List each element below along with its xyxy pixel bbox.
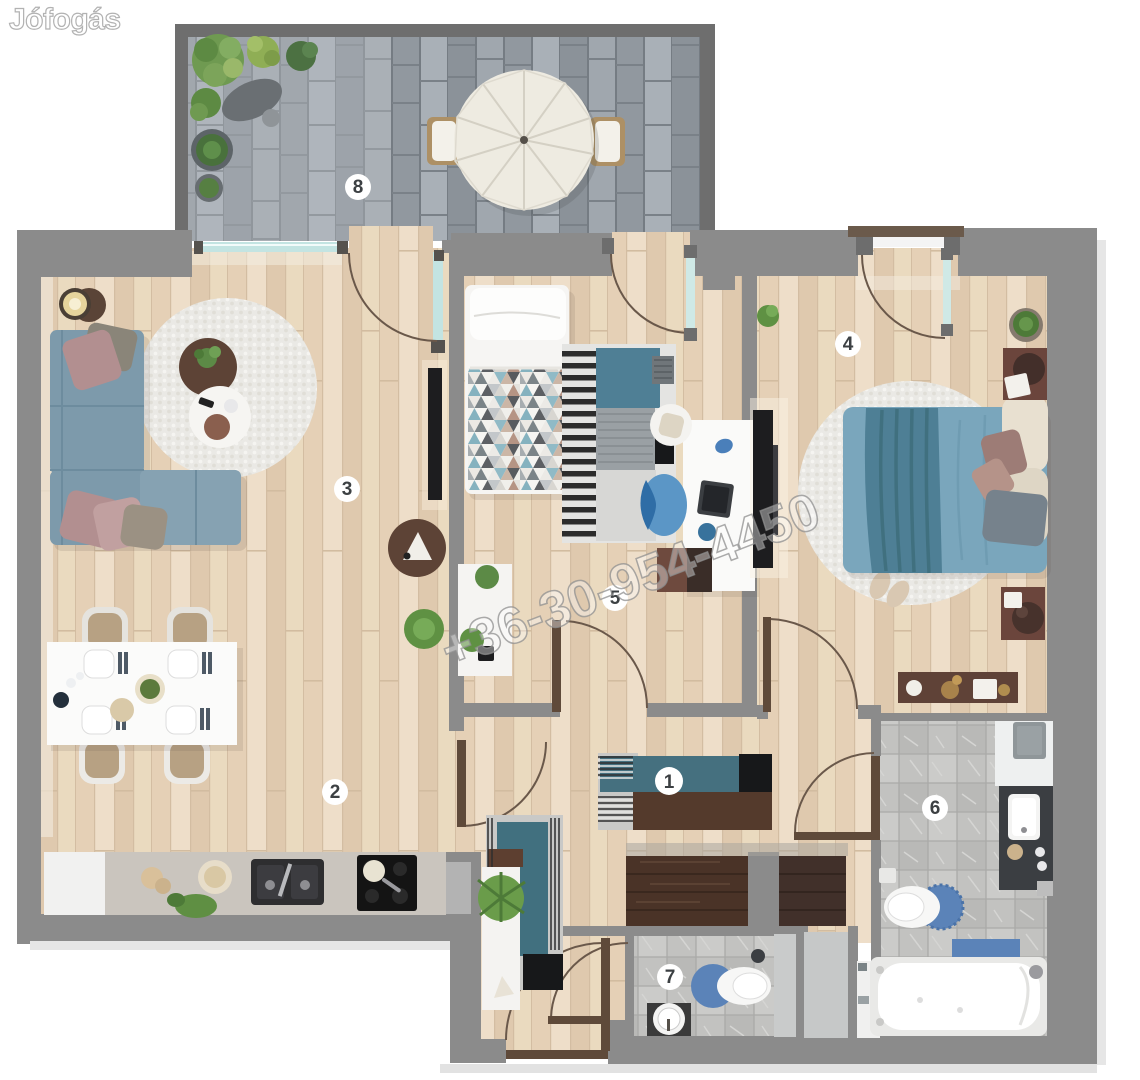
svg-text:3: 3 <box>342 479 353 500</box>
svg-text:4: 4 <box>843 334 854 355</box>
svg-text:1: 1 <box>664 772 675 793</box>
svg-text:7: 7 <box>665 967 676 988</box>
svg-text:6: 6 <box>930 798 941 819</box>
svg-text:2: 2 <box>330 782 341 803</box>
svg-text:Jófogás: Jófogás <box>9 3 121 36</box>
svg-text:8: 8 <box>353 177 364 198</box>
